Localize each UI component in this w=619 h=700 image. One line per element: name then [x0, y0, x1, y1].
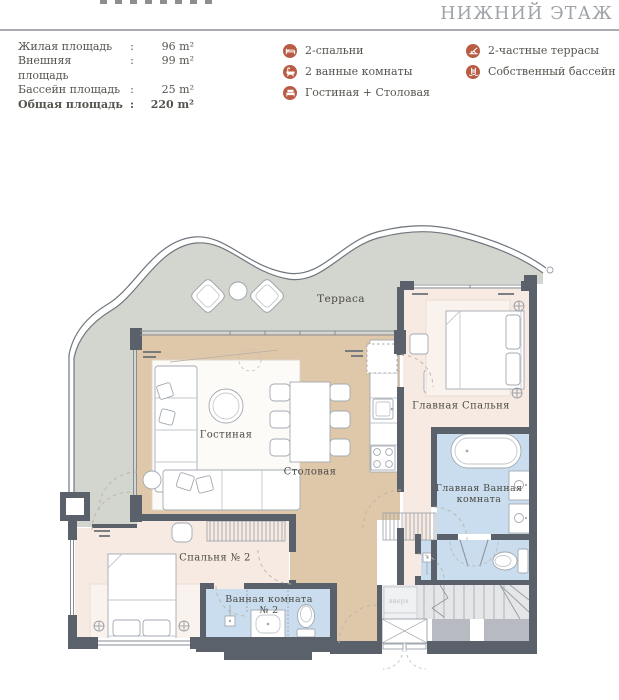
- room-label-bedroom-2: Спальня № 2: [179, 553, 251, 564]
- window-sill: [98, 638, 190, 648]
- sink: [509, 504, 531, 533]
- stairs-direction-label: вверх: [389, 597, 409, 605]
- room-label-master-bathroom: Главная Ванная комната: [435, 483, 523, 505]
- exterior-step: [484, 619, 529, 641]
- wardrobe: [383, 513, 436, 540]
- room-label-dining-room: Столовая: [284, 467, 337, 478]
- toilet: [493, 552, 517, 570]
- entrance: [382, 619, 427, 669]
- master-bedroom-furniture: [410, 300, 524, 396]
- column-core: [66, 498, 84, 515]
- wardrobe: [207, 521, 285, 541]
- room-label-terrace: Терраса: [317, 293, 365, 305]
- terrace-table: [229, 282, 247, 300]
- bathtub: [451, 434, 521, 468]
- room-label-bathroom-2: Ванная комната № 2: [224, 594, 314, 616]
- dining-table-set: [270, 382, 350, 462]
- room-label-living-room: Гостиная: [200, 430, 253, 441]
- room-label-master-bedroom: Главная Спальня: [412, 401, 510, 412]
- exterior-step: [432, 619, 470, 641]
